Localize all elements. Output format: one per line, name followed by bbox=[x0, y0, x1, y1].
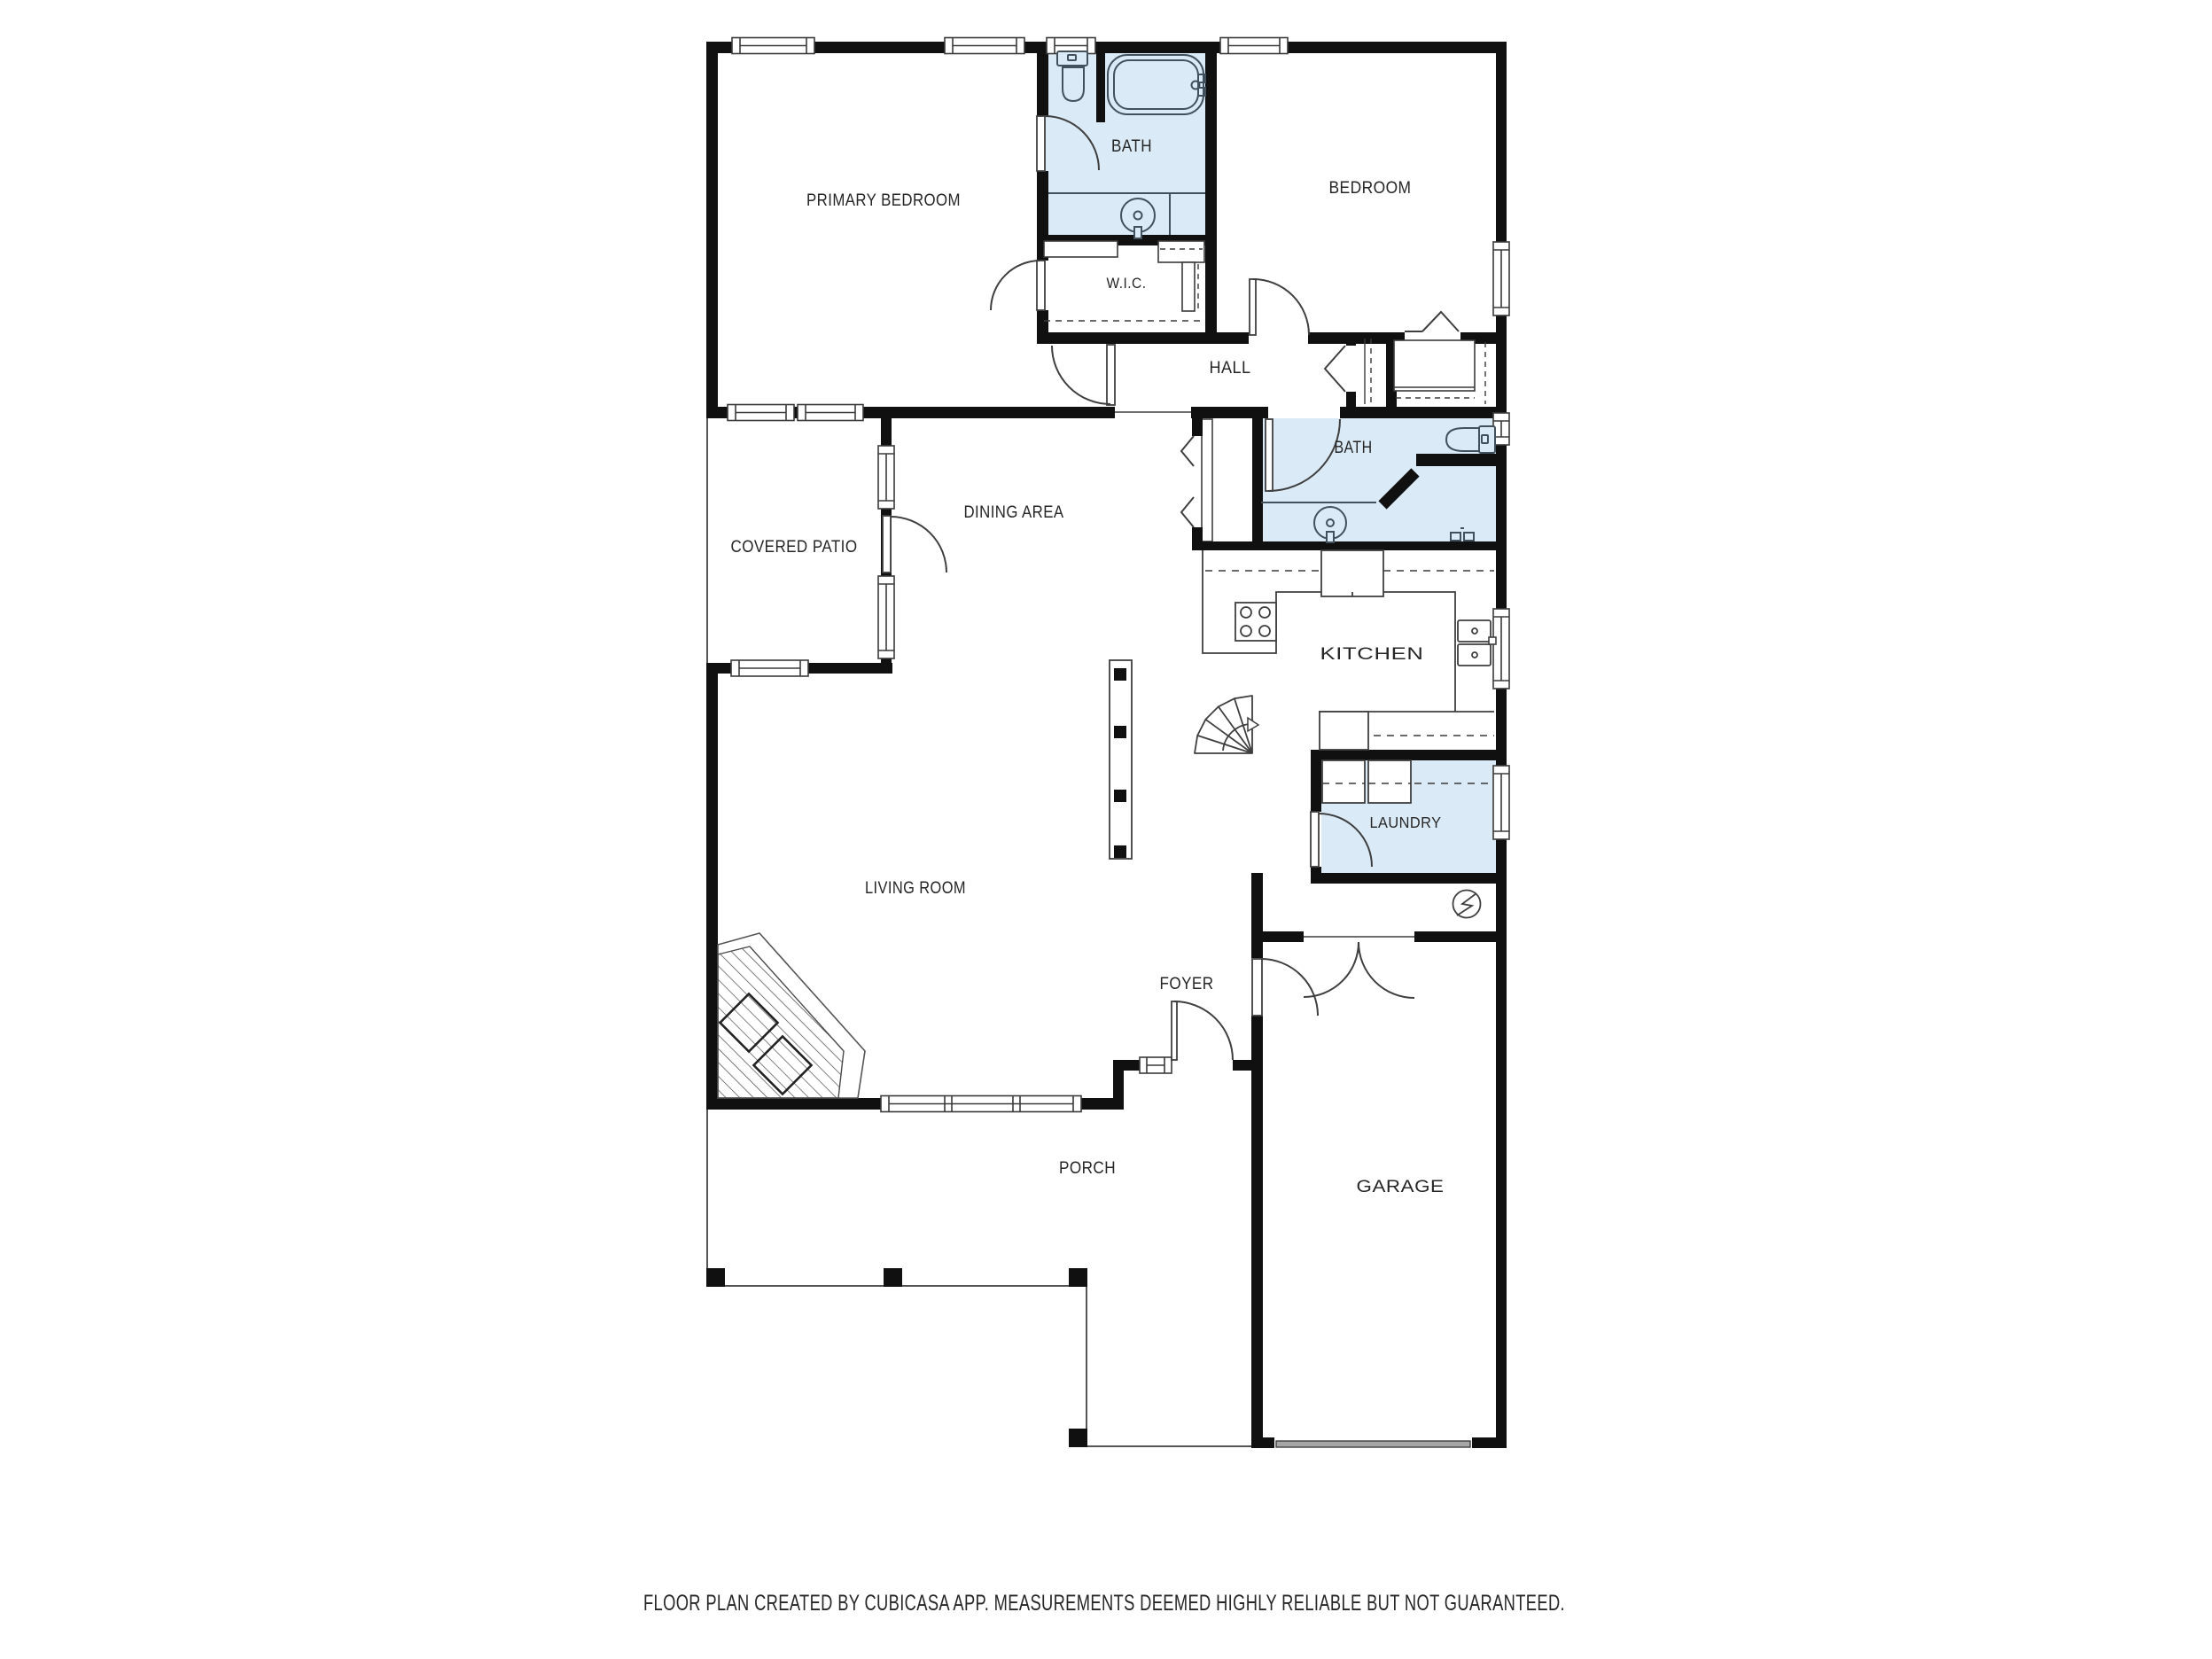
svg-text:BATH: BATH bbox=[1111, 136, 1152, 156]
svg-text:PRIMARY BEDROOM: PRIMARY BEDROOM bbox=[806, 191, 961, 210]
svg-text:BEDROOM: BEDROOM bbox=[1329, 178, 1412, 198]
svg-text:COVERED PATIO: COVERED PATIO bbox=[731, 537, 858, 557]
svg-text:LIVING ROOM: LIVING ROOM bbox=[865, 878, 966, 898]
svg-text:LAUNDRY: LAUNDRY bbox=[1370, 814, 1442, 831]
svg-text:FOYER: FOYER bbox=[1160, 974, 1214, 993]
svg-text:BATH: BATH bbox=[1335, 438, 1373, 457]
svg-text:HALL: HALL bbox=[1210, 358, 1251, 378]
svg-text:W.I.C.: W.I.C. bbox=[1107, 275, 1147, 292]
svg-text:KITCHEN: KITCHEN bbox=[1320, 644, 1424, 664]
svg-text:DINING AREA: DINING AREA bbox=[964, 502, 1064, 522]
svg-text:FLOOR PLAN CREATED BY CUBICASA: FLOOR PLAN CREATED BY CUBICASA APP. MEAS… bbox=[643, 1591, 1565, 1616]
svg-text:GARAGE: GARAGE bbox=[1357, 1177, 1445, 1196]
svg-text:PORCH: PORCH bbox=[1059, 1158, 1116, 1178]
